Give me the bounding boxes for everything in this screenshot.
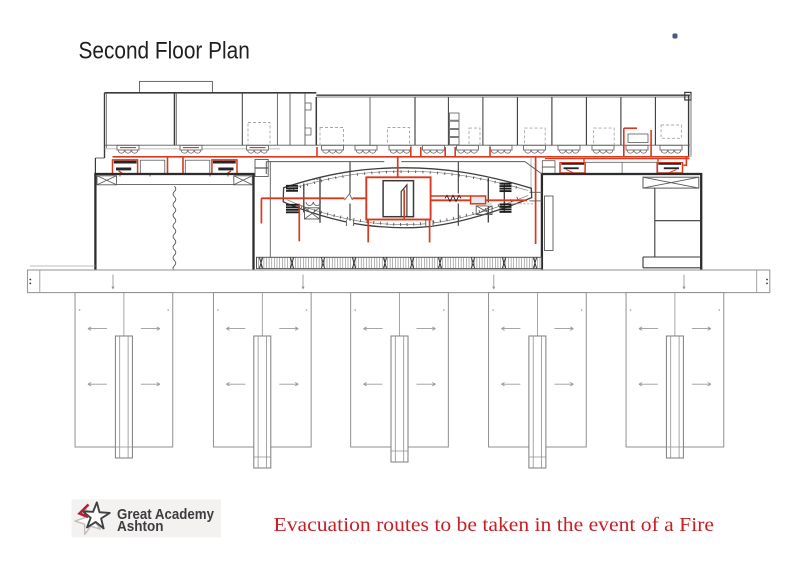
svg-text:Evacuation routes to be taken: Evacuation routes to be taken in the eve…	[274, 514, 715, 536]
svg-text:Ashton: Ashton	[117, 519, 164, 535]
svg-text:Second Floor Plan: Second Floor Plan	[79, 37, 250, 64]
